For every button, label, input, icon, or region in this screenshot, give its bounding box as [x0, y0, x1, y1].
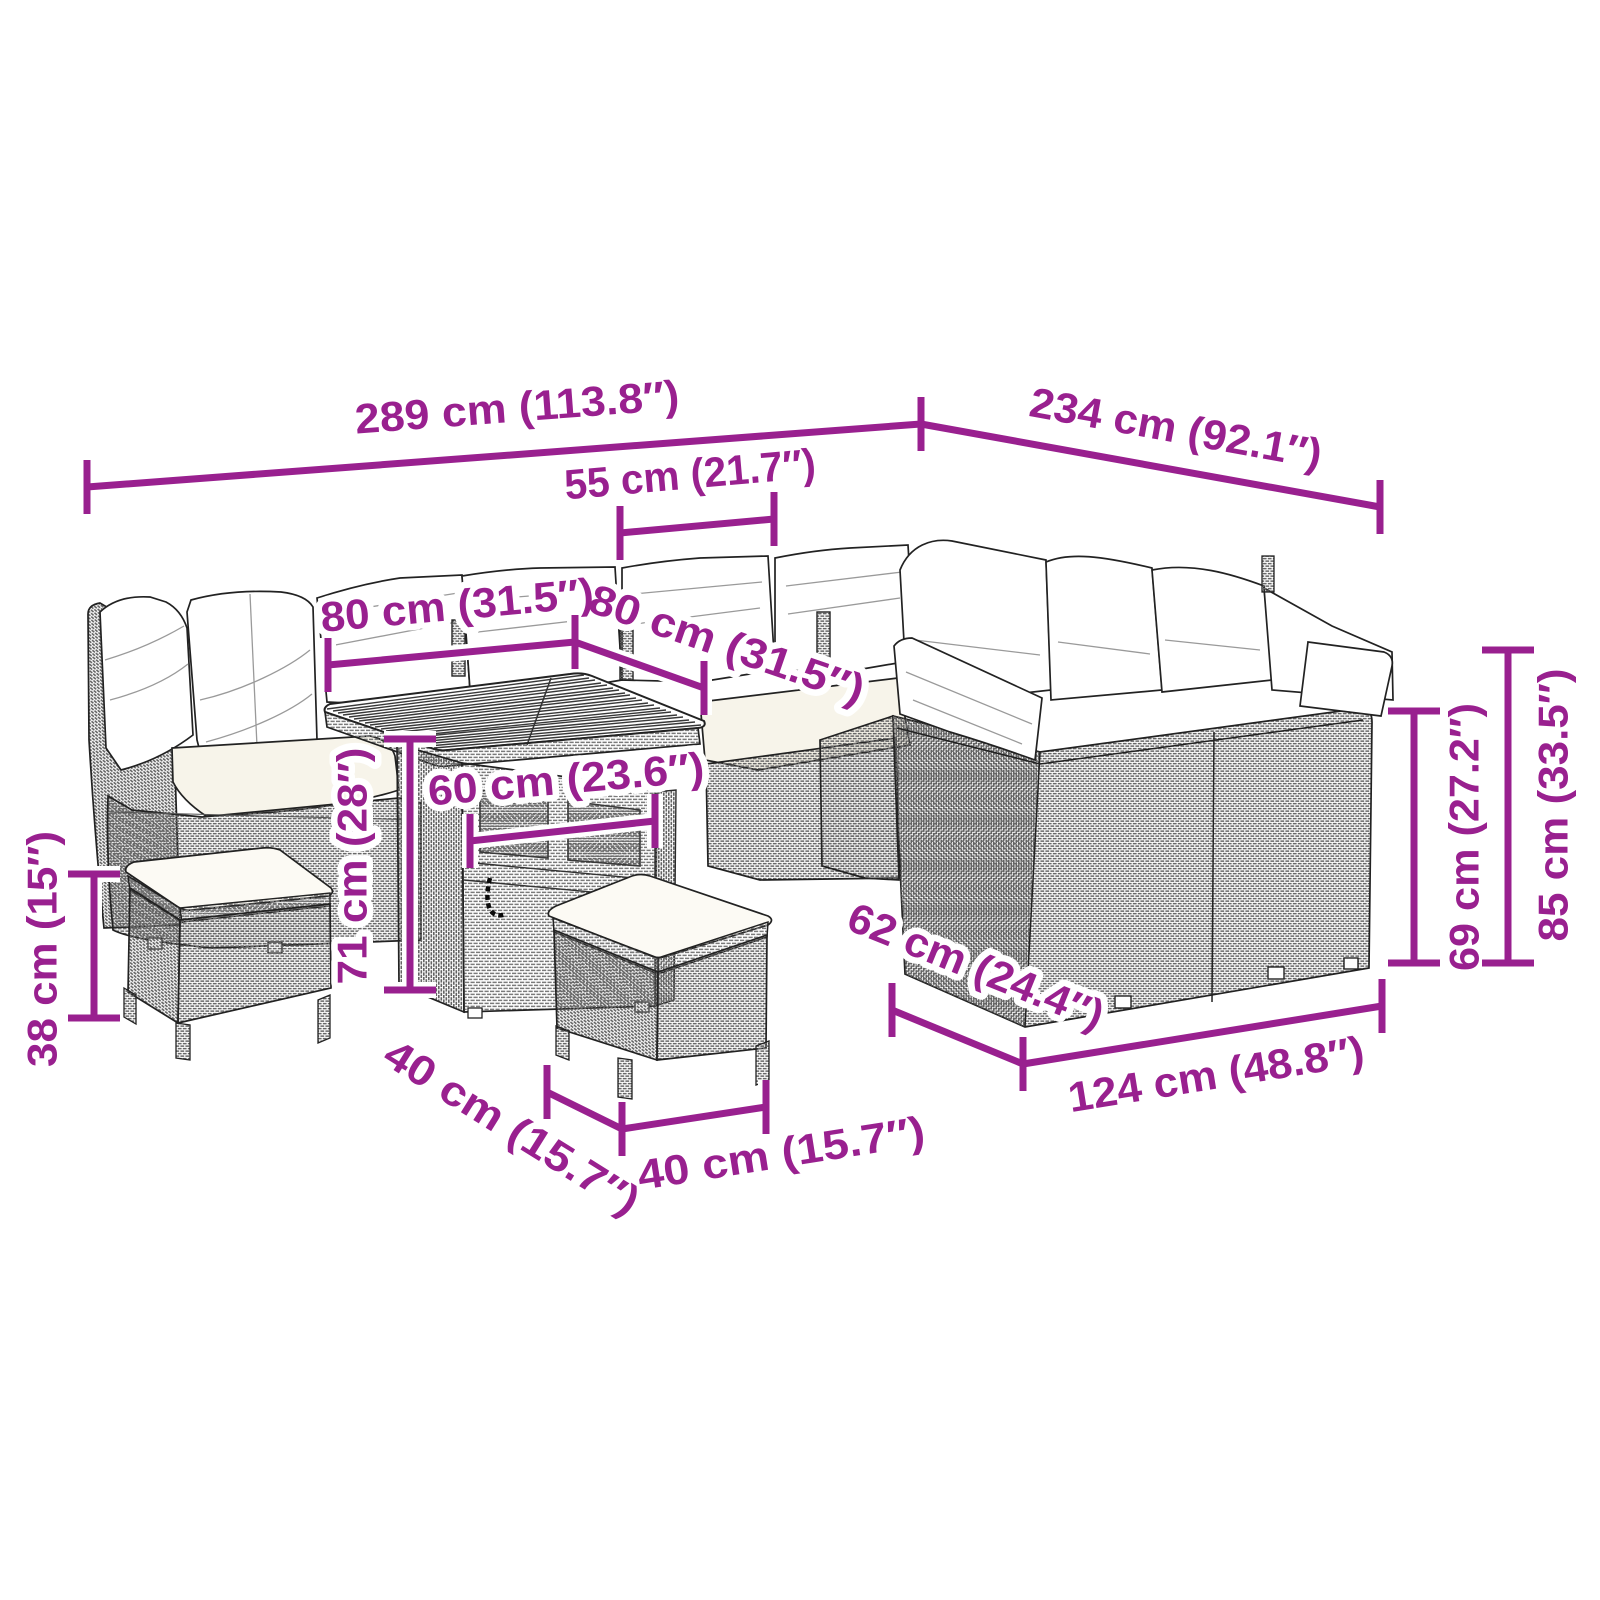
svg-text:85 cm (33.5″): 85 cm (33.5″): [1530, 669, 1577, 942]
svg-text:69 cm (27.2″): 69 cm (27.2″): [1441, 703, 1488, 971]
svg-text:38 cm (15″): 38 cm (15″): [19, 831, 66, 1067]
svg-text:71 cm (28″): 71 cm (28″): [329, 748, 376, 985]
